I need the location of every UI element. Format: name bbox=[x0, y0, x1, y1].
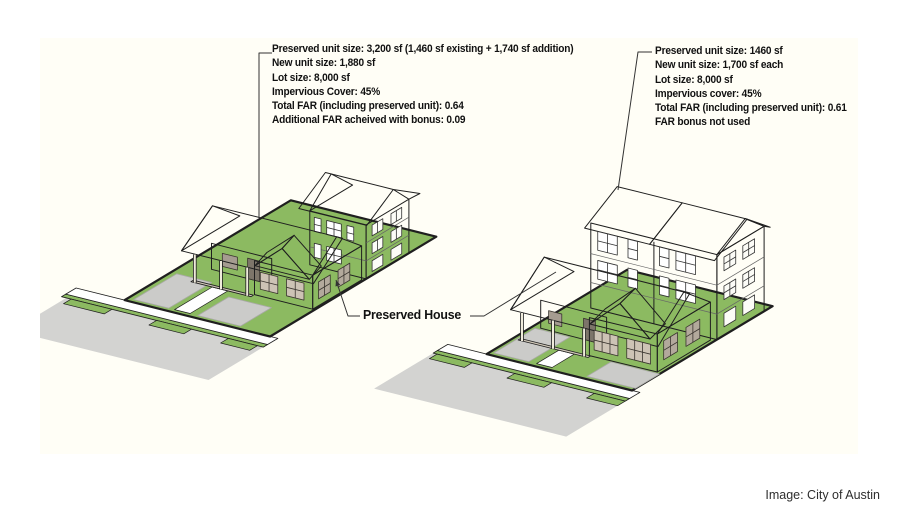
annotation-line: Additional FAR acheived with bonus: 0.09 bbox=[272, 113, 573, 127]
annotation-line: Preserved unit size: 3,200 sf (1,460 sf … bbox=[272, 42, 573, 56]
annotation-line: Lot size: 8,000 sf bbox=[272, 71, 573, 85]
annotation-line: New unit size: 1,700 sf each bbox=[655, 58, 847, 72]
annotation-line: Preserved unit size: 1460 sf bbox=[655, 44, 847, 58]
annotation-line: Total FAR (including preserved unit): 0.… bbox=[272, 99, 573, 113]
right-annotation-leader bbox=[618, 52, 652, 190]
left-scene bbox=[12, 173, 437, 381]
annotation-line: Impervious cover: 45% bbox=[655, 87, 847, 101]
annotation-line: New unit size: 1,880 sf bbox=[272, 56, 573, 70]
left-annotation: Preserved unit size: 3,200 sf (1,460 sf … bbox=[272, 42, 573, 128]
annotation-line: Lot size: 8,000 sf bbox=[655, 73, 847, 87]
image-credit: Image: City of Austin bbox=[765, 488, 880, 502]
addition-roof-back bbox=[393, 190, 420, 200]
annotation-line: FAR bonus not used bbox=[655, 115, 847, 129]
preserved-house-label: Preserved House bbox=[363, 307, 461, 322]
left-annotation-leader bbox=[259, 53, 272, 218]
annotation-line: Total FAR (including preserved unit): 0.… bbox=[655, 101, 847, 115]
figure-page: Preserved unit size: 3,200 sf (1,460 sf … bbox=[0, 0, 900, 506]
annotation-line: Impervious Cover: 45% bbox=[272, 85, 573, 99]
right-annotation: Preserved unit size: 1460 sf New unit si… bbox=[655, 44, 847, 130]
roof-left-end bbox=[511, 257, 574, 310]
preserved-house-leader-right bbox=[470, 272, 556, 316]
duplex-roof-back bbox=[745, 219, 770, 228]
addition-gable bbox=[310, 174, 353, 211]
